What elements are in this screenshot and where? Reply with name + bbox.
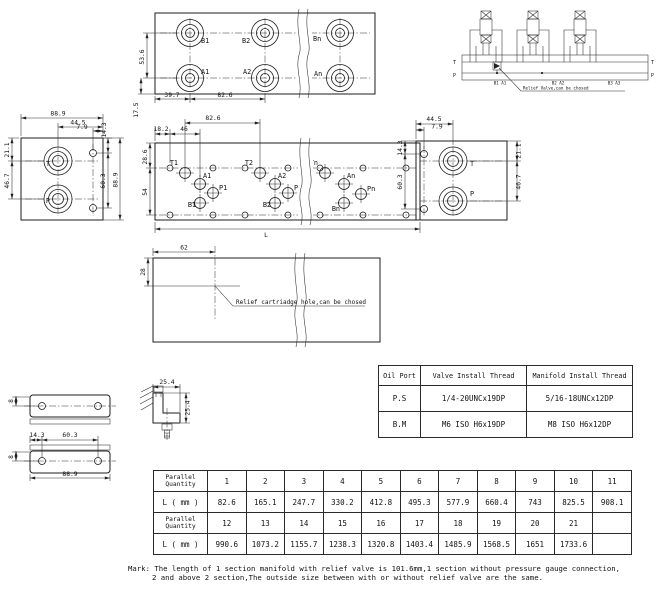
cell: 20: [516, 513, 555, 534]
cell: 412.8: [362, 492, 401, 513]
port-label: A1: [203, 172, 211, 180]
cell: Parallel Quantity: [154, 513, 208, 534]
left-side-view: T P 88.9 44.5 7.9 21.1 46.7 14.3 60.3 88…: [4, 111, 124, 221]
dim-21-1: 21.1: [4, 142, 11, 157]
table-row: L ( mm ) 990.6 1073.2 1155.7 1238.3 1320…: [154, 534, 632, 555]
port-label: B2: [242, 37, 250, 45]
bracket-dimensions: 14.3 60.3 8 88.9: [8, 432, 110, 481]
valve-symbol: [564, 11, 596, 62]
port-label: B1: [201, 37, 209, 45]
dim-14-3: 14.3: [101, 122, 108, 137]
dim-62: 62: [180, 245, 188, 252]
dim-25-4: 25.4: [185, 400, 192, 415]
front-section-1: T1 A1 P1 B1: [170, 159, 227, 212]
dim-46: 46: [180, 126, 188, 133]
dim-25-4: 25.4: [159, 379, 174, 386]
port-label: A2: [278, 172, 286, 180]
dim-L: L: [264, 232, 268, 239]
cell: B.M: [379, 412, 421, 438]
top-view: B1 B2 Bn A1 A2 An 53.6 17.5 39.7 82.6: [133, 9, 375, 118]
cell: 1155.7: [285, 534, 324, 555]
port-t-label: T: [46, 160, 50, 168]
left-view-dimensions: 88.9 44.5 7.9 21.1 46.7 14.3 60.3 88.9: [4, 111, 124, 221]
cell: 4: [323, 471, 362, 492]
section-view: 62 28 Relief cartriadge hole,can be chos…: [140, 245, 380, 348]
cell: 19: [477, 513, 516, 534]
schematic-note: Relief Valve,can be chosed: [523, 86, 589, 91]
cell: 3: [285, 471, 324, 492]
cell: 1: [208, 471, 247, 492]
table-row: B.M M6 ISO H6x19DP M8 ISO H6x12DP: [379, 412, 633, 438]
port-label: B2: [263, 201, 271, 209]
schematic-p-right: P: [651, 73, 654, 79]
cell: 577.9: [439, 492, 478, 513]
port-label: Pn: [367, 185, 375, 193]
port-label: P1: [219, 184, 227, 192]
dim-82-6: 82.6: [205, 115, 220, 122]
cell: 247.7: [285, 492, 324, 513]
dim-60-3: 60.3: [100, 173, 107, 188]
front-section-n: Tn An Pn Bn: [310, 159, 375, 213]
cell: Valve Install Thread: [421, 366, 527, 386]
thread-table: Oil Port Valve Install Thread Manifold I…: [378, 365, 633, 438]
cell: P.S: [379, 386, 421, 412]
cell: 14: [285, 513, 324, 534]
port-label: Bn: [313, 35, 321, 43]
cell: 12: [208, 513, 247, 534]
break-gap: [296, 14, 312, 93]
cell: 1238.3: [323, 534, 362, 555]
port-label: A2: [243, 68, 251, 76]
port-label: T2: [245, 159, 253, 167]
port-p-label: P: [46, 197, 50, 205]
cell: 1403.4: [400, 534, 439, 555]
dim-7-9: 7.9: [76, 124, 88, 131]
cell: 13: [246, 513, 285, 534]
cell: Parallel Quantity: [154, 471, 208, 492]
cell: 660.4: [477, 492, 516, 513]
cell: 15: [323, 513, 362, 534]
cell: 1485.9: [439, 534, 478, 555]
cell: 5/16-18UNCx12DP: [527, 386, 633, 412]
schematic-t-right: T: [651, 60, 654, 66]
cell: Oil Port: [379, 366, 421, 386]
cell: 10: [554, 471, 593, 492]
cell: 6: [400, 471, 439, 492]
schematic-group-label: B1 A1: [494, 81, 507, 86]
port-label: Bn: [332, 205, 340, 213]
dim-88-9: 88.9: [62, 471, 77, 478]
dim-54: 54: [142, 188, 149, 196]
port-label: An: [347, 172, 355, 180]
cell: 1/4-20UNCx19DP: [421, 386, 527, 412]
cell: 82.6: [208, 492, 247, 513]
cell: 165.1: [246, 492, 285, 513]
cell: 5: [362, 471, 401, 492]
cell: 17: [400, 513, 439, 534]
dim-46-7: 46.7: [516, 174, 523, 189]
port-label: B1: [188, 201, 196, 209]
dim-88-9-v: 88.9: [113, 172, 120, 187]
table-row: L ( mm ) 82.6 165.1 247.7 330.2 412.8 49…: [154, 492, 632, 513]
relief-valve-symbol: [493, 62, 543, 74]
cell: 9: [516, 471, 555, 492]
bracket-top-lip: [30, 419, 110, 424]
dim-53-6: 53.6: [139, 49, 146, 64]
port-p-label: P: [470, 190, 474, 198]
table-row: P.S 1/4-20UNCx19DP 5/16-18UNCx12DP: [379, 386, 633, 412]
right-side-view: T P 44.5 7.9 14.3 60.3 21.1 46.7: [397, 116, 523, 220]
bracket-views: 8 14.3 60.3 8 88.9: [8, 379, 192, 481]
cell: [593, 513, 632, 534]
schematic-t-left: T: [453, 60, 456, 66]
tp-holes: [44, 147, 97, 213]
cell: L ( mm ): [154, 534, 208, 555]
dim-18-2: 18.2: [153, 126, 168, 133]
dim-21-1: 21.1: [516, 143, 523, 158]
dim-60-3: 60.3: [397, 174, 404, 189]
dim-8: 8: [8, 399, 15, 403]
cell: 1733.6: [554, 534, 593, 555]
length-table: Parallel Quantity 1 2 3 4 5 6 7 8 9 10 1…: [153, 470, 632, 555]
dim-14-3: 14.3: [29, 432, 44, 439]
dim-88-9: 88.9: [50, 111, 65, 118]
cell: 21: [554, 513, 593, 534]
dim-28-6: 28.6: [142, 149, 149, 164]
manifold-bar: [462, 55, 648, 80]
section-view-dimensions: 62 28: [140, 245, 215, 287]
dim-44-5: 44.5: [426, 116, 441, 123]
cell: 16: [362, 513, 401, 534]
cell: 8: [477, 471, 516, 492]
table-row: Parallel Quantity 12 13 14 15 16 17 18 1…: [154, 513, 632, 534]
cell: 2: [246, 471, 285, 492]
cell: 1073.2: [246, 534, 285, 555]
port-label: A1: [201, 68, 209, 76]
cell: 743: [516, 492, 555, 513]
dim-60-3: 60.3: [62, 432, 77, 439]
dim-14-3: 14.3: [397, 140, 404, 155]
section-note: Relief cartriadge hole,can be chosed: [236, 299, 366, 306]
left-view-centerlines: [25, 144, 100, 216]
table-row: Oil Port Valve Install Thread Manifold I…: [379, 366, 633, 386]
cell: 11: [593, 471, 632, 492]
cell: L ( mm ): [154, 492, 208, 513]
port-label: T1: [170, 159, 178, 167]
mark-note: Mark: The length of 1 section manifold w…: [128, 564, 620, 582]
cell: M6 ISO H6x19DP: [421, 412, 527, 438]
valve-symbol: [517, 11, 549, 62]
schematic-group-label: B3 A3: [608, 81, 621, 86]
dim-7-9: 7.9: [431, 124, 443, 131]
cell: 908.1: [593, 492, 632, 513]
cell: 1651: [516, 534, 555, 555]
cell: 7: [439, 471, 478, 492]
front-view: T1 A1 P1 B1 T2 A2 P2 B2 Tn An Pn Bn: [142, 115, 420, 239]
schematic-p-left: P: [453, 73, 456, 79]
cell: 825.5: [554, 492, 593, 513]
cell: 330.2: [323, 492, 362, 513]
cell: 495.3: [400, 492, 439, 513]
valve-symbol: [470, 11, 502, 62]
cell: [593, 534, 632, 555]
cell: Manifold Install Thread: [527, 366, 633, 386]
front-section-2: T2 A2 P2 B2: [245, 159, 302, 212]
manifold-drawing-sheet: B1 B2 Bn A1 A2 An 53.6 17.5 39.7 82.6: [0, 0, 659, 600]
cell: M8 ISO H6x12DP: [527, 412, 633, 438]
dim-17-5: 17.5: [133, 102, 140, 117]
dim-28: 28: [140, 268, 147, 276]
cell: 18: [439, 513, 478, 534]
mark-line-2: 2 and above 2 section,The outside size b…: [152, 573, 620, 582]
cell: 1320.8: [362, 534, 401, 555]
port-label: An: [314, 70, 322, 78]
bracket-side-detail: 25.4 25.4: [140, 379, 192, 441]
dim-8: 8: [8, 455, 15, 459]
dim-46-7: 46.7: [4, 173, 11, 188]
cell: 990.6: [208, 534, 247, 555]
mark-line-1: Mark: The length of 1 section manifold w…: [128, 564, 620, 573]
dim-82-6: 82.6: [217, 92, 232, 99]
dim-39-7: 39.7: [164, 92, 179, 99]
cell: 1568.5: [477, 534, 516, 555]
hydraulic-schematic: T P T P B1 A1 B2 A2 B3 A3 Relief Valve,c…: [453, 11, 654, 91]
right-view-block: [416, 141, 507, 220]
table-row: Parallel Quantity 1 2 3 4 5 6 7 8 9 10 1…: [154, 471, 632, 492]
tp-holes: [421, 147, 468, 215]
